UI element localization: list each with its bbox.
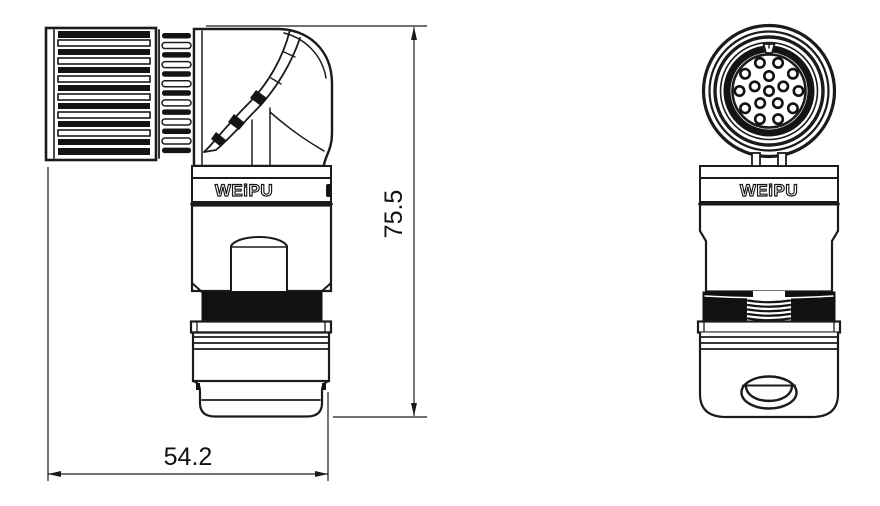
rib-outlined	[58, 112, 150, 118]
rib-outlined	[58, 94, 150, 100]
contact-pin	[740, 104, 749, 113]
knurl-solid	[162, 90, 191, 96]
technical-drawing-svg: WEiPU	[0, 0, 880, 506]
rib-solid	[58, 85, 150, 91]
knurl-solid	[162, 129, 191, 135]
rib-outlined	[58, 76, 150, 82]
cable-gland-side	[191, 322, 331, 417]
contact-pin	[740, 69, 749, 78]
contact-pin	[773, 98, 782, 107]
connector-face	[704, 26, 835, 157]
elbow-body	[194, 29, 332, 166]
height-dimension-label: 75.5	[380, 190, 408, 239]
thread-section-front	[703, 291, 835, 321]
knurl-outlined	[162, 43, 191, 49]
knurl-outlined	[162, 100, 191, 106]
knurl-solid	[162, 52, 191, 58]
knurl-outlined	[162, 138, 191, 144]
width-dimension-label: 54.2	[164, 443, 213, 471]
rib-outlined	[58, 40, 150, 46]
contact-pin	[750, 82, 759, 91]
rib-outlined	[58, 130, 150, 136]
thread-section-side	[202, 292, 322, 321]
rib-solid	[58, 67, 150, 73]
rib-solid	[58, 103, 150, 109]
rib-outlined	[58, 58, 150, 64]
contact-pin	[779, 82, 788, 91]
upper-body-front: WEiPU	[700, 166, 838, 292]
knurl-ring	[159, 29, 194, 166]
contact-pin	[756, 98, 765, 107]
contact-pin	[773, 114, 782, 123]
drawing-canvas: WEiPU	[0, 0, 880, 506]
contact-pin	[764, 71, 773, 80]
front-view: WEiPU	[698, 26, 840, 418]
arrow-up	[411, 27, 417, 40]
brand-text-side: WEiPU	[215, 181, 273, 200]
knurl-solid	[162, 33, 191, 39]
knurl-solid	[162, 109, 191, 115]
knurl-solid	[162, 148, 191, 154]
contact-pin	[788, 104, 797, 113]
knurl-bars	[162, 33, 191, 153]
dome-detail	[231, 237, 287, 291]
arrow-right	[315, 471, 328, 477]
contact-pin	[755, 114, 764, 123]
side-view: WEiPU	[46, 28, 332, 417]
contact-pin	[755, 58, 764, 67]
knurl-outlined	[162, 81, 191, 87]
arrow-left	[48, 471, 61, 477]
contact-pin	[794, 86, 803, 95]
arrow-down	[411, 403, 417, 416]
knurl-outlined	[162, 119, 191, 125]
contact-pin	[788, 69, 797, 78]
rib-solid	[58, 121, 150, 127]
contact-pin	[735, 86, 744, 95]
knurl-outlined	[162, 62, 191, 68]
contact-pin	[764, 86, 773, 95]
coupling-nut	[46, 28, 156, 160]
contact-pin	[773, 58, 782, 67]
main-body-side	[192, 206, 331, 293]
brand-band-side: WEiPU	[192, 166, 331, 204]
rib-solid	[58, 139, 150, 145]
knurl-solid	[162, 71, 191, 77]
cable-gland-front	[698, 322, 840, 418]
rib-solid	[58, 49, 150, 55]
brand-text-front: WEiPU	[740, 181, 798, 200]
gland-latch	[742, 377, 797, 409]
